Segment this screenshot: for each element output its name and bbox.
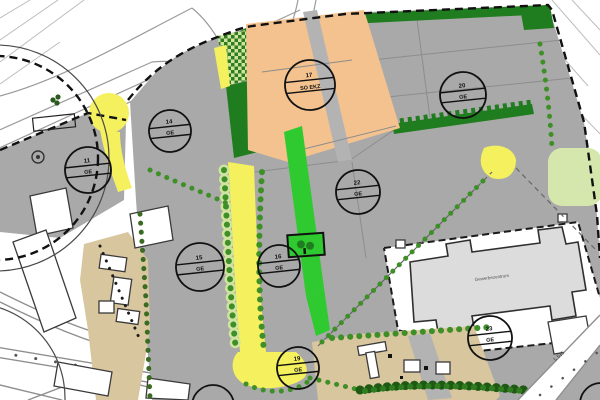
svg-text:GE: GE	[84, 169, 93, 176]
planting-symbol	[287, 233, 324, 257]
green-area-east	[548, 148, 600, 206]
tree-icon	[50, 94, 60, 105]
svg-text:GE: GE	[459, 94, 468, 101]
svg-text:17: 17	[305, 73, 313, 80]
svg-text:15: 15	[195, 255, 203, 262]
svg-text:22: 22	[353, 180, 361, 187]
svg-text:23: 23	[485, 326, 493, 333]
svg-text:GE: GE	[166, 130, 175, 137]
svg-text:19: 19	[293, 356, 301, 363]
svg-text:16: 16	[274, 254, 282, 261]
svg-text:GE: GE	[196, 266, 205, 273]
plan-canvas: Gewerbezentrum	[0, 0, 600, 400]
svg-text:GE: GE	[275, 265, 284, 272]
site-plan-map: Gewerbezentrum	[0, 0, 600, 400]
svg-text:GE: GE	[354, 191, 363, 198]
svg-text:GE: GE	[294, 367, 303, 374]
building-footprint	[396, 240, 405, 248]
svg-text:GE: GE	[486, 337, 495, 344]
svg-text:20: 20	[458, 83, 466, 90]
svg-text:14: 14	[165, 119, 173, 126]
